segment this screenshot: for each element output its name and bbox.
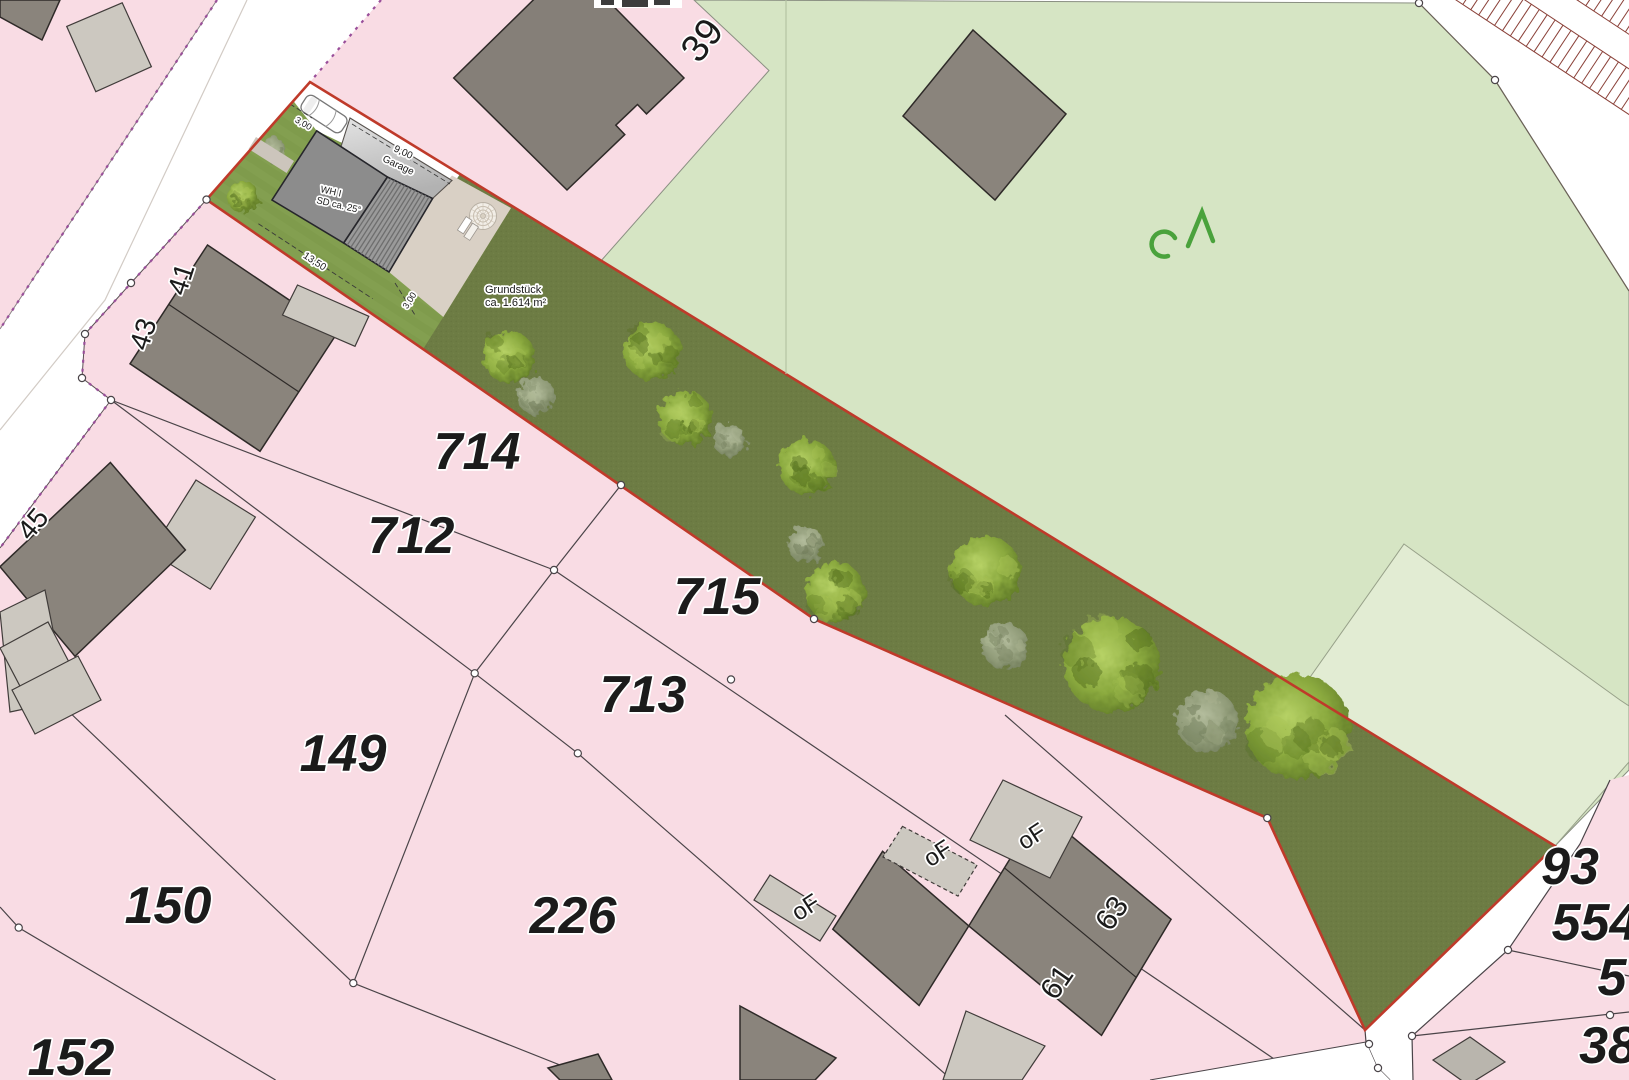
svg-text:Grundstück: Grundstück — [485, 284, 542, 296]
svg-text:152: 152 — [28, 1029, 115, 1080]
svg-text:713: 713 — [600, 666, 687, 724]
svg-text:ca. 1.614 m²: ca. 1.614 m² — [485, 297, 546, 309]
svg-text:38: 38 — [1579, 1017, 1629, 1075]
svg-text:714: 714 — [434, 423, 521, 481]
svg-text:150: 150 — [125, 877, 212, 935]
svg-text:93: 93 — [1541, 838, 1599, 896]
svg-text:715: 715 — [674, 568, 762, 626]
svg-text:712: 712 — [368, 507, 455, 565]
svg-text:554: 554 — [1552, 894, 1629, 952]
svg-text:5: 5 — [1598, 949, 1628, 1007]
svg-text:149: 149 — [300, 725, 387, 783]
svg-text:226: 226 — [529, 887, 618, 945]
